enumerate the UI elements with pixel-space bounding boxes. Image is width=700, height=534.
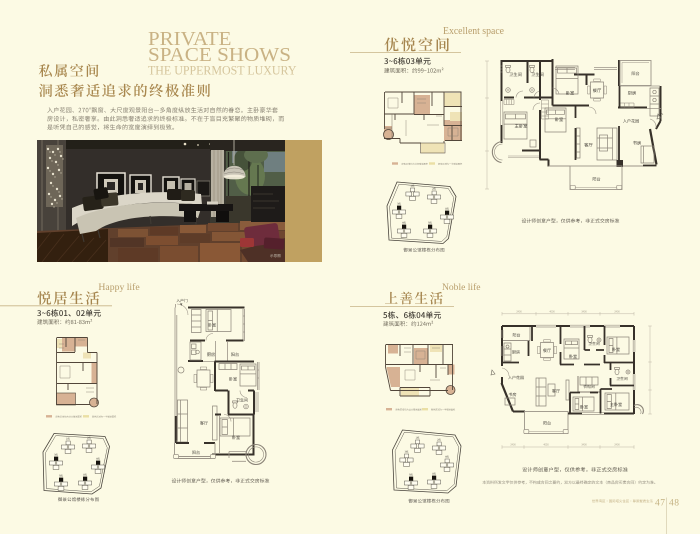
svg-text:4050: 4050 (543, 444, 549, 447)
svg-text:4000: 4000 (549, 311, 555, 314)
svg-text:2400: 2400 (614, 311, 620, 314)
svg-text:3400: 3400 (581, 444, 587, 447)
svg-text:2400: 2400 (510, 444, 516, 447)
svg-text:Happy life: Happy life (98, 282, 140, 293)
svg-text:Noble life: Noble life (442, 282, 481, 293)
svg-text:THE UPPERMOST LUXURY: THE UPPERMOST LUXURY (148, 63, 297, 78)
svg-text:2400: 2400 (516, 311, 522, 314)
svg-text:3400: 3400 (581, 311, 587, 314)
svg-text:47: 47 (655, 499, 666, 509)
svg-text:2400: 2400 (614, 444, 620, 447)
svg-text:Excellent space: Excellent space (443, 26, 505, 37)
svg-text:48: 48 (669, 499, 680, 509)
